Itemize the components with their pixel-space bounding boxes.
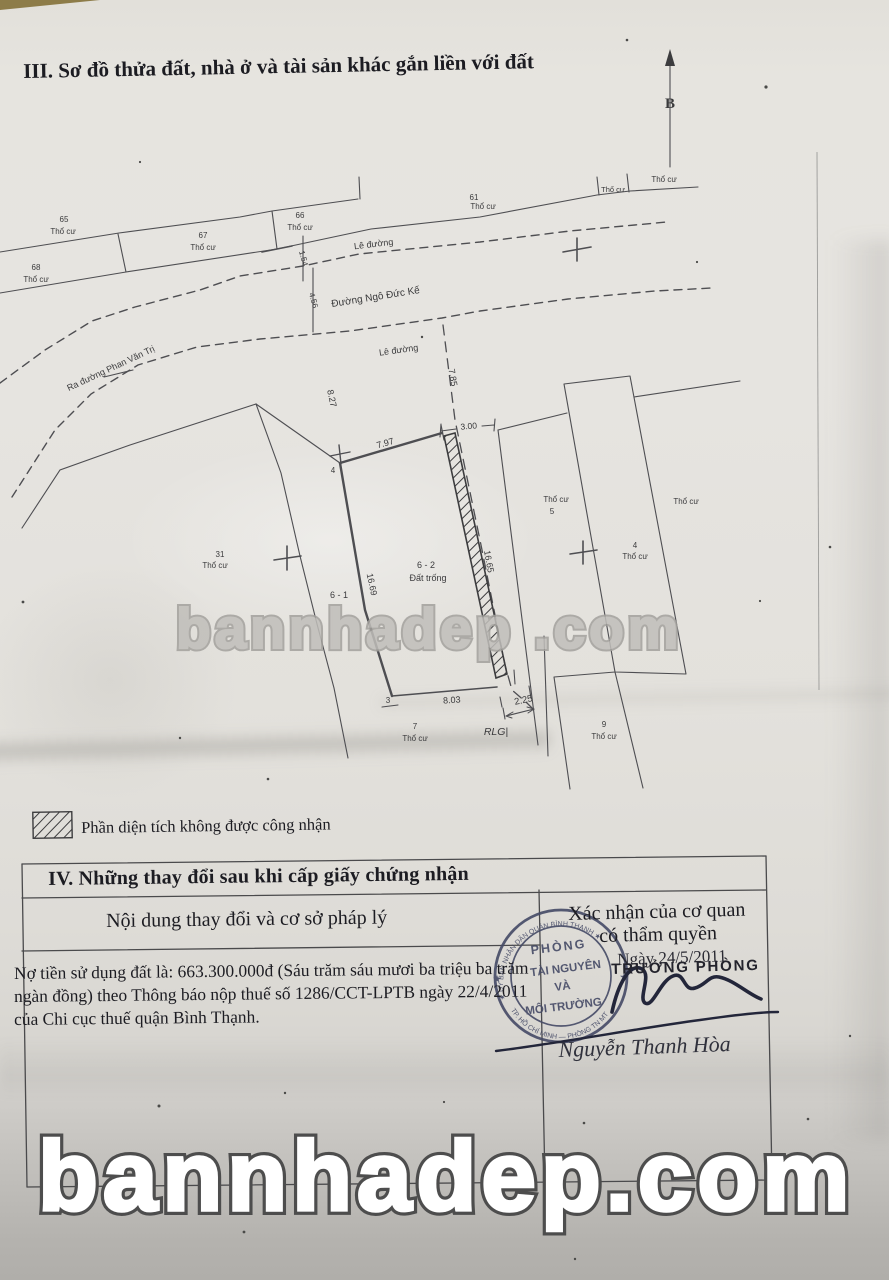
svg-text:Thổ cư: Thổ cư bbox=[402, 734, 428, 743]
svg-text:61: 61 bbox=[470, 193, 479, 202]
svg-text:Ra đường Phan Văn Trị: Ra đường Phan Văn Trị bbox=[65, 344, 156, 393]
svg-text:Lê đường: Lê đường bbox=[353, 237, 393, 252]
svg-text:Thổ cư: Thổ cư bbox=[50, 227, 76, 236]
svg-text:RLG|: RLG| bbox=[484, 726, 508, 738]
svg-text:8.27: 8.27 bbox=[325, 389, 338, 408]
svg-text:16.69: 16.69 bbox=[365, 572, 379, 596]
svg-text:7.85: 7.85 bbox=[447, 368, 460, 387]
svg-text:3.00: 3.00 bbox=[460, 420, 478, 431]
svg-text:Thổ cư: Thổ cư bbox=[543, 495, 569, 504]
svg-text:1.54: 1.54 bbox=[297, 250, 310, 268]
svg-text:Thổ cư: Thổ cư bbox=[591, 732, 617, 741]
svg-text:8.03: 8.03 bbox=[443, 694, 461, 705]
svg-text:Thổ cư: Thổ cư bbox=[601, 185, 625, 194]
svg-text:B: B bbox=[665, 96, 675, 112]
svg-text:Thổ cư: Thổ cư bbox=[673, 497, 699, 506]
svg-text:Thổ cư: Thổ cư bbox=[651, 175, 677, 184]
svg-text:4: 4 bbox=[331, 466, 336, 475]
svg-text:68: 68 bbox=[32, 263, 41, 272]
svg-text:3: 3 bbox=[386, 696, 391, 705]
svg-text:65: 65 bbox=[60, 215, 69, 224]
svg-text:6 - 2: 6 - 2 bbox=[417, 560, 435, 570]
svg-text:Thổ cư: Thổ cư bbox=[190, 243, 216, 252]
svg-text:VÀ: VÀ bbox=[554, 979, 571, 994]
svg-text:Thổ cư: Thổ cư bbox=[287, 223, 313, 232]
svg-text:7: 7 bbox=[413, 722, 418, 731]
svg-text:Đất trống: Đất trống bbox=[409, 573, 446, 583]
svg-text:Lê đường: Lê đường bbox=[378, 342, 418, 357]
svg-text:67: 67 bbox=[199, 231, 208, 240]
svg-text:9: 9 bbox=[602, 720, 607, 729]
svg-text:31: 31 bbox=[216, 550, 225, 559]
svg-text:Thổ cư: Thổ cư bbox=[202, 561, 228, 570]
svg-text:PHÒNG: PHÒNG bbox=[530, 936, 587, 958]
svg-text:MÔI TRƯỜNG: MÔI TRƯỜNG bbox=[525, 995, 603, 1017]
svg-text:5: 5 bbox=[550, 507, 555, 516]
svg-text:Thổ cư: Thổ cư bbox=[622, 552, 648, 561]
svg-text:4.56: 4.56 bbox=[307, 292, 320, 310]
svg-text:Thổ cư: Thổ cư bbox=[470, 202, 496, 211]
svg-text:66: 66 bbox=[296, 211, 305, 220]
svg-text:4: 4 bbox=[633, 541, 638, 550]
svg-text:2.25: 2.25 bbox=[513, 693, 533, 708]
svg-text:Đường Ngô Đức Kế: Đường Ngô Đức Kế bbox=[330, 284, 421, 310]
svg-text:Thổ cư: Thổ cư bbox=[23, 275, 49, 284]
